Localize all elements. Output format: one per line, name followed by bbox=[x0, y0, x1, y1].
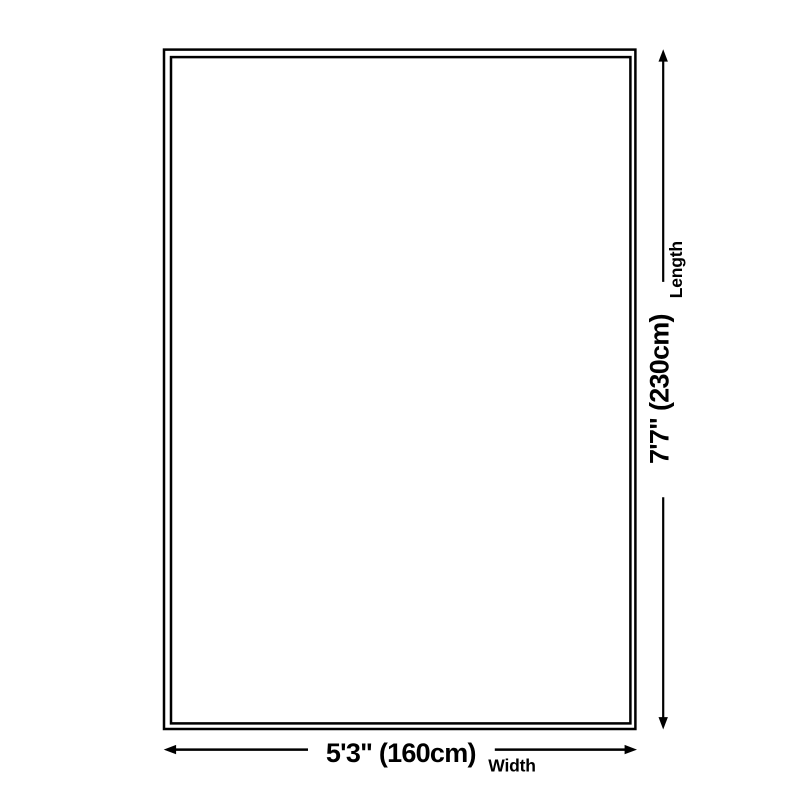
svg-text:Length: Length bbox=[666, 241, 686, 298]
svg-text:5'3" (160cm): 5'3" (160cm) bbox=[326, 738, 476, 768]
svg-text:7'7" (230cm): 7'7" (230cm) bbox=[645, 314, 675, 464]
svg-text:Width: Width bbox=[488, 755, 535, 775]
